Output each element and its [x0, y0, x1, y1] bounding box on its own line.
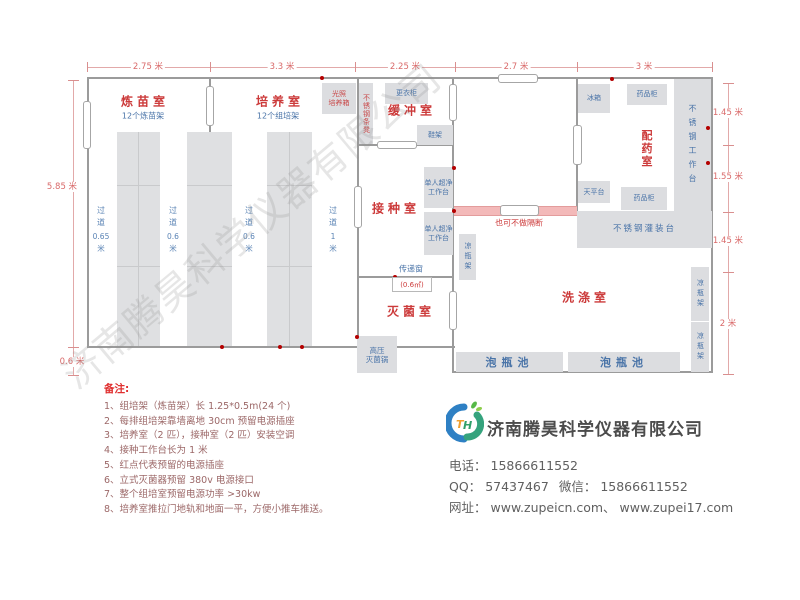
dim-tick	[68, 80, 79, 81]
aisle-unit: 米	[245, 243, 253, 254]
aisle-name: 过道	[328, 206, 339, 230]
dim-tick	[355, 62, 356, 72]
soak-pool-label: 泡瓶池	[600, 358, 648, 367]
aisle-width: 0.6	[243, 232, 255, 241]
rack-divider	[117, 266, 160, 267]
dim-tick	[68, 347, 79, 348]
dim-top-1: 2.75 米	[131, 62, 165, 72]
aisle-width: 1	[331, 232, 336, 241]
medicine-cabinet-top-box: 药品柜	[627, 84, 667, 105]
rack-divider	[267, 185, 312, 186]
rack-divider	[187, 266, 232, 267]
aisle-name: 过道	[95, 206, 106, 230]
rack-divider	[138, 132, 139, 346]
left-dimension-line	[73, 80, 74, 375]
cooling-rack-label: 凉瓶架	[696, 279, 705, 309]
dim-tick	[723, 145, 734, 146]
aisle-unit: 米	[97, 243, 105, 254]
light-incubator-label-2: 培养箱	[329, 99, 350, 108]
note-item: 1、组培架（炼苗架）长 1.25*0.5m(24 个)	[104, 400, 329, 415]
culture-rack-column	[187, 132, 232, 346]
power-socket-dot	[220, 345, 224, 349]
qq-label: QQ：	[449, 479, 481, 494]
room-sub-culture: 12个组培架	[257, 111, 299, 122]
phone-label: 电话：	[449, 458, 487, 473]
dim-tick	[68, 375, 79, 376]
aisle-unit: 米	[169, 243, 177, 254]
rack-divider	[117, 185, 160, 186]
dim-tick	[210, 62, 211, 72]
door-buffer-corridor	[449, 84, 457, 121]
dim-top-3: 2.25 米	[388, 62, 422, 72]
dim-tick	[455, 62, 456, 72]
autoclave-label-2: 灭菌锅	[366, 355, 389, 364]
cooling-rack-box: 凉瓶架	[459, 234, 476, 280]
note-item: 4、接种工作台长为 1 米	[104, 444, 329, 459]
cooling-rack-right-box-2: 凉瓶架	[691, 322, 709, 372]
rack-divider	[187, 185, 232, 186]
logo-letter-h: H	[463, 419, 472, 432]
aisle-width: 0.65	[93, 232, 110, 241]
door-culture-inoculation	[354, 186, 362, 228]
dim-tick	[87, 62, 88, 72]
note-item: 2、每排组培架靠墙离地 30cm 预留电源插座	[104, 415, 329, 430]
dim-tick	[723, 83, 734, 84]
steel-worktable-box: 不锈钢工作台	[674, 79, 711, 213]
door-prep-room	[573, 125, 582, 165]
door-buffer-inoculation	[377, 141, 417, 149]
power-socket-dot	[452, 209, 456, 213]
autoclave-label-1: 高压	[370, 346, 385, 355]
clean-bench-box-2: 单人超净 工作台	[424, 212, 453, 255]
note-item: 8、培养室推拉门地轨和地面一平，方便小推车推送。	[104, 503, 329, 518]
aisle-unit: 米	[329, 243, 337, 254]
fridge-box: 冰箱	[578, 84, 610, 113]
medicine-cabinet-label: 药品柜	[637, 90, 658, 99]
cooling-rack-label: 凉瓶架	[463, 242, 472, 272]
transfer-window-label: 传递窗	[399, 264, 423, 275]
shoe-rack-label: 鞋架	[428, 131, 442, 140]
dim-tick	[723, 374, 734, 375]
balance-table-box: 天平台	[578, 181, 610, 203]
dim-tick	[723, 272, 734, 273]
aisle-label-4: 过道 1 米	[328, 206, 339, 254]
rack-divider	[267, 266, 312, 267]
note-item: 5、红点代表预留的电源插座	[104, 459, 329, 474]
company-qq-line: QQ：57437467微信：15866611552	[449, 476, 692, 495]
filling-table-box: 不锈钢灌装台	[577, 211, 712, 248]
room-sub-hardening: 12个炼苗架	[122, 111, 164, 122]
clean-bench-box-1: 单人超净 工作台	[424, 167, 453, 208]
cooling-rack-label: 凉瓶架	[696, 332, 705, 362]
room-label-washing: 洗涤室	[562, 289, 610, 306]
note-item: 6、立式灭菌器预留 380v 电源接口	[104, 474, 329, 489]
company-web-line: 网址：www.zupeicn.com、 www.zupei17.com	[449, 497, 737, 516]
company-name: 济南腾昊科学仪器有限公司	[487, 415, 703, 440]
light-incubator-box: 光照 培养箱	[322, 83, 356, 114]
aisle-label-3: 过道 0.6 米	[243, 206, 255, 254]
autoclave-box: 高压 灭菌锅	[357, 336, 397, 373]
light-incubator-label-1: 光照	[332, 90, 346, 99]
aisle-label-1: 过道 0.65 米	[93, 206, 110, 254]
aisle-width: 0.6	[167, 232, 179, 241]
power-socket-dot	[610, 77, 614, 81]
steel-bench-box: 不锈钢条凳	[359, 83, 373, 144]
partition-note: 也可不做隔断	[495, 218, 543, 229]
power-socket-dot	[355, 335, 359, 339]
dim-right-3: 1.45 米	[711, 236, 745, 246]
wechat-label: 微信：	[559, 479, 597, 494]
phone-value: 15866611552	[491, 458, 578, 473]
power-socket-dot	[300, 345, 304, 349]
qq-value: 57437467	[485, 479, 549, 494]
wall-top	[87, 77, 713, 79]
company-logo: T H	[446, 401, 484, 445]
medicine-cabinet-label: 药品柜	[634, 194, 655, 203]
balance-table-label: 天平台	[584, 188, 605, 197]
note-item: 7、整个组培室预留电源功率 >30kw	[104, 488, 329, 503]
wardrobe-label: 更衣柜	[396, 89, 417, 98]
door-sterilize-wash	[449, 291, 457, 330]
steel-worktable-label: 不锈钢工作台	[688, 104, 697, 188]
clean-bench-label-2: 工作台	[428, 188, 449, 197]
room-label-hardening: 炼苗室	[121, 93, 169, 110]
dim-top-2: 3.3 米	[268, 62, 297, 72]
door-corridor-top	[498, 74, 538, 83]
company-phone-line: 电话：15866611552	[449, 455, 582, 474]
room-label-preparation: 配药室	[638, 130, 654, 169]
dim-tick	[577, 62, 578, 72]
dim-top-4: 2.7 米	[502, 62, 531, 72]
dim-left-main: 5.85 米	[45, 182, 79, 192]
clean-bench-label-2: 工作台	[428, 234, 449, 243]
room-label-inoculation: 接种室	[372, 200, 420, 217]
aisle-name: 过道	[244, 206, 255, 230]
floor-plan-drawing: 济南腾昊科学仪器有限公司 2.75 米 3.3 米 2.25 米 2.7 米 3…	[0, 0, 800, 600]
notes-header: 备注:	[104, 381, 329, 396]
clean-bench-label-1: 单人超净	[425, 225, 453, 234]
transfer-window-box: (0.6㎡)	[392, 277, 432, 292]
web-value: www.zupeicn.com、 www.zupei17.com	[491, 500, 734, 515]
wechat-value: 15866611552	[600, 479, 687, 494]
soak-pool-box-2: 泡瓶池	[568, 352, 680, 372]
door-hardening-exterior	[83, 101, 91, 149]
clean-bench-label-1: 单人超净	[425, 179, 453, 188]
wall-bottom-left	[87, 346, 455, 348]
transfer-window-area: (0.6㎡)	[400, 280, 424, 290]
room-label-sterilization: 灭菌室	[387, 303, 435, 320]
right-dimension-line	[728, 83, 729, 374]
power-socket-dot	[278, 345, 282, 349]
shoe-rack-box: 鞋架	[417, 125, 453, 145]
filling-table-label: 不锈钢灌装台	[613, 225, 676, 234]
dim-right-2: 1.55 米	[711, 172, 745, 182]
soak-pool-box-1: 泡瓶池	[456, 352, 563, 372]
web-label: 网址：	[449, 500, 487, 515]
cooling-rack-right-box-1: 凉瓶架	[691, 267, 709, 321]
medicine-cabinet-bottom-box: 药品柜	[621, 187, 667, 210]
door-hardening-culture	[206, 86, 214, 126]
dim-right-1: 1.45 米	[711, 108, 745, 118]
rack-divider	[289, 132, 290, 346]
power-socket-dot	[706, 126, 710, 130]
note-item: 3、培养室（2 匹），接种室（2 匹）安装空调	[104, 429, 329, 444]
fridge-label: 冰箱	[587, 94, 601, 103]
aisle-name: 过道	[168, 206, 179, 230]
aisle-label-2: 过道 0.6 米	[167, 206, 179, 254]
power-socket-dot	[452, 166, 456, 170]
soak-pool-label: 泡瓶池	[486, 358, 534, 367]
room-label-buffer: 缓冲室	[388, 102, 436, 119]
dim-tick	[723, 212, 734, 213]
dim-right-4: 2 米	[718, 319, 739, 329]
dim-tick	[712, 62, 713, 72]
notes-section: 备注: 1、组培架（炼苗架）长 1.25*0.5m(24 个) 2、每排组培架靠…	[104, 381, 329, 518]
steel-bench-label: 不锈钢条凳	[362, 94, 371, 134]
dim-left-ext: 0.6 米	[58, 357, 87, 367]
room-label-culture: 培养室	[256, 93, 304, 110]
power-socket-dot	[320, 76, 324, 80]
door-partition	[500, 205, 539, 216]
power-socket-dot	[706, 161, 710, 165]
dim-top-5: 3 米	[634, 62, 655, 72]
